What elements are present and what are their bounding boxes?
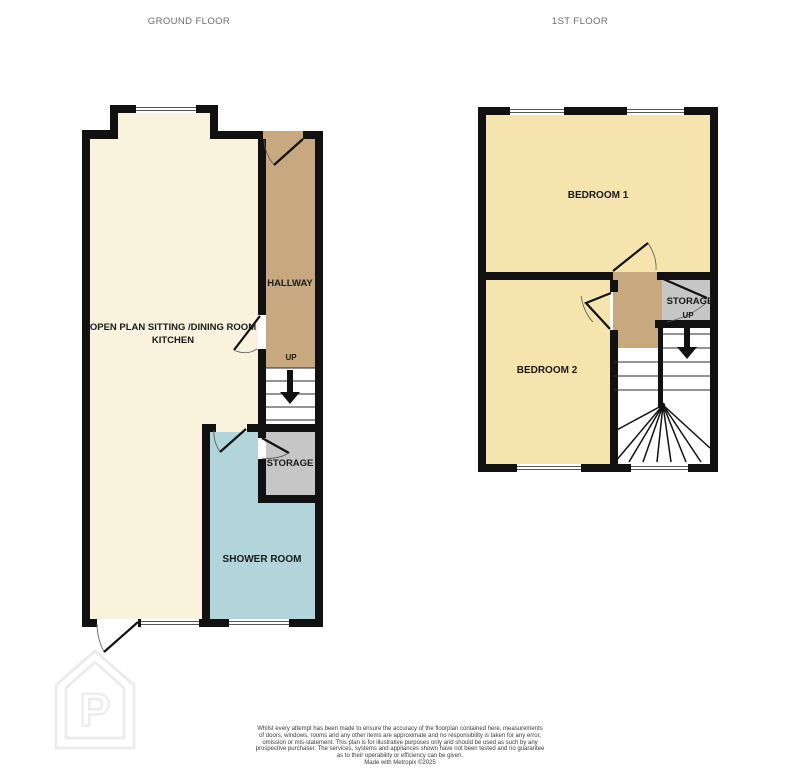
wall-segment [315, 131, 323, 627]
first-floor-rooms [486, 115, 710, 464]
wall-segment [266, 424, 315, 432]
landing [613, 272, 662, 348]
disclaimer-line: as to their operability or efficiency ca… [250, 753, 550, 760]
room-label-open-plan-line1: OPEN PLAN SITTING /DINING ROOM [90, 322, 256, 333]
window [141, 619, 199, 627]
first-floor-plan: BEDROOM 1 BEDROOM 2 STORAGE UP [455, 95, 735, 485]
wall-segment [688, 464, 718, 472]
wall-segment [258, 495, 315, 503]
wall-segment [258, 349, 266, 424]
ground-floor-title: GROUND FLOOR [99, 16, 279, 27]
wall-segment [710, 107, 718, 472]
window [627, 107, 684, 115]
wall-segment [218, 131, 263, 139]
disclaimer-line: of doors, windows, rooms and any other i… [250, 733, 550, 740]
wall-segment [210, 105, 218, 139]
stairs-up-label: UP [682, 311, 694, 320]
first-floor-title: 1ST FLOOR [490, 16, 670, 27]
room-label-hallway: HALLWAY [267, 278, 313, 289]
window [229, 619, 289, 627]
room-hallway [266, 131, 315, 368]
floorplan-page: GROUND FLOOR 1ST FLOOR [0, 0, 799, 768]
wall-segment [82, 130, 90, 627]
window [631, 464, 688, 472]
room-label-open-plan-line2: KITCHEN [152, 335, 194, 346]
disclaimer: Whilst every attempt has been made to en… [250, 726, 550, 767]
wall-segment [486, 272, 613, 280]
window [136, 105, 196, 113]
window [510, 107, 564, 115]
wall-segment [564, 107, 627, 115]
wall-segment [610, 330, 618, 464]
wall-segment [478, 107, 486, 472]
stairs-up-label: UP [285, 353, 297, 362]
ground-floor-plan: OPEN PLAN SITTING /DINING ROOM KITCHEN H… [60, 95, 350, 675]
wall-segment [202, 432, 210, 627]
wall-segment [82, 619, 97, 627]
room-label-storage: STORAGE [267, 458, 314, 469]
wall-segment [610, 280, 618, 292]
wall-segment [478, 464, 517, 472]
disclaimer-line: Whilst every attempt has been made to en… [250, 726, 550, 733]
room-label-bedroom2: BEDROOM 2 [517, 365, 578, 376]
wall-segment [581, 464, 631, 472]
disclaimer-line: omission or mis-statement. This plan is … [250, 740, 550, 747]
wall-segment [247, 424, 266, 432]
room-label-bedroom1: BEDROOM 1 [568, 190, 629, 201]
room-label-storage: STORAGE [667, 296, 714, 307]
wall-segment [655, 320, 710, 328]
stair-divider-wall [658, 320, 663, 408]
stair-direction-arrow [287, 370, 293, 393]
disclaimer-line: prospective purchaser. The services, sys… [250, 746, 550, 753]
metropix-watermark: P [52, 648, 138, 752]
wall-segment [258, 139, 266, 315]
room-open-plan-bay [118, 113, 210, 139]
stair-direction-arrow [684, 326, 690, 349]
window [517, 464, 581, 472]
credit-line: Made with Metropix ©2025 [250, 760, 550, 767]
watermark-letter: P [80, 684, 111, 736]
room-label-shower: SHOWER ROOM [223, 554, 302, 565]
